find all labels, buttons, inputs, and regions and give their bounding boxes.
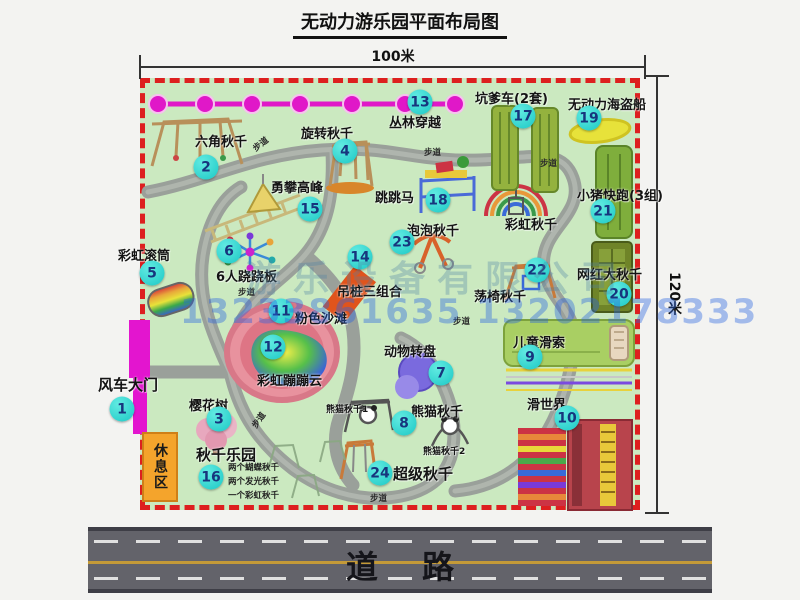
dimension-line-right — [656, 76, 658, 514]
attraction-23-badge: 23 — [390, 230, 415, 255]
road-label: 道路 — [88, 542, 712, 588]
attraction-7-badge: 7 — [429, 361, 454, 386]
panda-swing-1-label: 熊猫秋千1 — [326, 402, 368, 415]
swing-park-note-2: 两个发光秋千 — [228, 475, 279, 487]
attraction-5-label: 彩虹滚筒 — [118, 245, 170, 264]
attraction-8-label: 熊猫秋千 — [411, 401, 463, 420]
attraction-13-label: 丛林穿越 — [389, 112, 441, 131]
path-label: 步道 — [370, 492, 387, 504]
attraction-2-badge: 2 — [194, 155, 219, 180]
attraction-14-badge: 14 — [348, 245, 373, 270]
attraction-19-badge: 19 — [577, 106, 602, 131]
attraction-11-badge: 11 — [269, 299, 294, 324]
dimension-width-label: 100米 — [140, 46, 646, 66]
attraction-17-badge: 17 — [511, 104, 536, 129]
dimension-line-top — [140, 66, 646, 68]
attraction-16-badge: 16 — [199, 465, 224, 490]
attraction-4-badge: 4 — [333, 139, 358, 164]
rainbow-swing-label: 彩虹秋千 — [505, 214, 557, 233]
attraction-24-badge: 24 — [368, 461, 393, 486]
attraction-23-label: 泡泡秋千 — [407, 220, 459, 239]
panda-swing-2-label: 熊猫秋千2 — [423, 444, 465, 457]
attraction-1-badge: 1 — [110, 397, 135, 422]
attraction-3-badge: 3 — [207, 407, 232, 432]
path-label: 步道 — [453, 315, 470, 327]
attraction-11-label: 粉色沙滩 — [295, 308, 347, 327]
swing-park-note-1: 两个蝴蝶秋千 — [228, 461, 279, 473]
attraction-7-label: 动物转盘 — [384, 341, 436, 360]
attraction-18-label: 跳跳马 — [375, 187, 414, 206]
dimension-tick-right-top — [645, 75, 669, 77]
attraction-21-badge: 21 — [591, 199, 616, 224]
attraction-17-label: 坑爹车(2套) — [475, 88, 548, 107]
attraction-21-label: 小猪快跑(3组) — [577, 185, 663, 204]
page-title: 无动力游乐园平面布局图 — [0, 8, 800, 34]
attraction-10-badge: 10 — [555, 406, 580, 431]
attraction-9-badge: 9 — [518, 345, 543, 370]
attraction-6-label: 6人跷跷板 — [216, 266, 277, 285]
road: 道路 — [88, 527, 712, 593]
dimension-tick-right-bottom — [645, 512, 669, 514]
attraction-2-label: 六角秋千 — [195, 131, 247, 150]
path-label: 步道 — [238, 286, 255, 298]
attraction-8-badge: 8 — [392, 411, 417, 436]
path-label: 步道 — [540, 157, 557, 169]
swing-park-note-3: 一个彩虹秋千 — [228, 489, 279, 501]
park-layout-plan: 无动力游乐园平面布局图 100米 120米 — [0, 0, 800, 600]
attraction-22-label: 荡椅秋千 — [474, 286, 526, 305]
attraction-13-badge: 13 — [408, 90, 433, 115]
attraction-20-label: 网红大秋千 — [577, 264, 642, 283]
attraction-14-label: 吊桩三组合 — [337, 281, 402, 300]
attraction-24-label: 超级秋千 — [393, 463, 453, 484]
attraction-12-badge: 12 — [261, 335, 286, 360]
attraction-22-badge: 22 — [525, 258, 550, 283]
attraction-12-label: 彩虹蹦蹦云 — [257, 370, 322, 389]
attraction-18-badge: 18 — [426, 188, 451, 213]
dimension-height-label: 120米 — [664, 272, 684, 315]
attraction-5-badge: 5 — [140, 261, 165, 286]
attraction-1-label: 风车大门 — [98, 374, 158, 395]
path-label: 步道 — [424, 146, 441, 158]
rest-area: 休息区 — [142, 432, 178, 502]
attraction-15-badge: 15 — [298, 197, 323, 222]
attraction-20-badge: 20 — [607, 282, 632, 307]
attraction-6-badge: 6 — [217, 239, 242, 264]
attraction-15-label: 勇攀高峰 — [271, 177, 323, 196]
